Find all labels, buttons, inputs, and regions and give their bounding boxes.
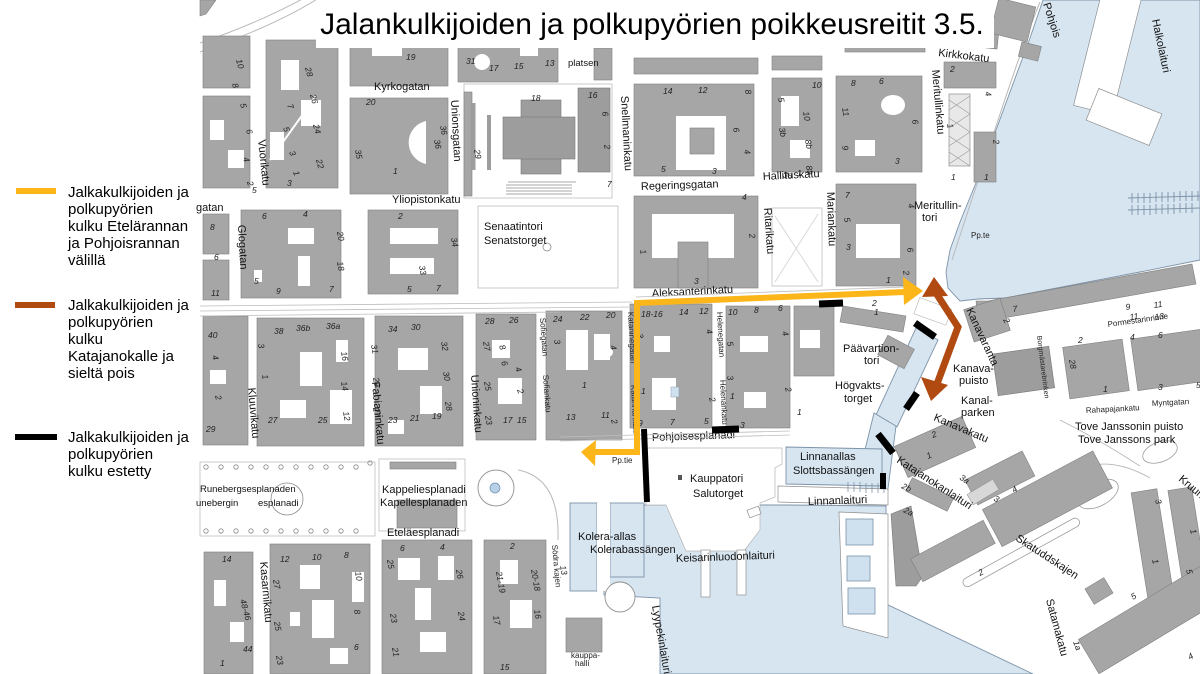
svg-text:9: 9 (276, 286, 281, 296)
svg-text:34: 34 (449, 237, 461, 248)
svg-text:20: 20 (605, 310, 616, 320)
svg-text:10: 10 (353, 571, 365, 582)
svg-text:23: 23 (388, 612, 400, 624)
svg-text:16: 16 (532, 609, 544, 620)
svg-text:38: 38 (274, 326, 284, 336)
svg-text:16: 16 (588, 90, 598, 100)
svg-text:1: 1 (874, 307, 879, 317)
svg-text:26: 26 (454, 568, 466, 580)
svg-text:1: 1 (220, 658, 225, 668)
svg-text:19: 19 (406, 52, 416, 62)
svg-text:3: 3 (895, 156, 900, 166)
svg-text:12: 12 (280, 554, 290, 564)
svg-text:Pp.te: Pp.te (971, 231, 990, 240)
svg-text:19: 19 (432, 411, 442, 421)
svg-text:3a: 3a (783, 170, 793, 180)
svg-text:6: 6 (262, 211, 267, 221)
svg-text:29: 29 (472, 148, 484, 160)
svg-text:23: 23 (483, 414, 495, 426)
svg-text:25: 25 (272, 620, 284, 632)
svg-text:Kauppatori: Kauppatori (690, 473, 743, 485)
svg-text:26: 26 (508, 315, 519, 325)
svg-text:Högvakts-: Högvakts- (835, 380, 885, 392)
svg-text:2: 2 (397, 211, 403, 221)
svg-text:Jalankulkijoiden ja polkupyöri: Jalankulkijoiden ja polkupyörien poikkeu… (320, 8, 984, 41)
svg-text:10: 10 (812, 80, 822, 90)
svg-text:17: 17 (491, 615, 503, 626)
svg-text:17: 17 (489, 63, 499, 73)
svg-text:16: 16 (339, 351, 351, 362)
svg-text:20: 20 (335, 230, 347, 242)
svg-text:32: 32 (439, 341, 451, 352)
svg-text:Tove Janssonin puisto: Tove Janssonin puisto (1075, 421, 1183, 433)
svg-text:4: 4 (1130, 332, 1135, 342)
svg-text:Yliopistonkatu: Yliopistonkatu (392, 194, 461, 206)
svg-text:30: 30 (411, 322, 421, 332)
svg-text:1: 1 (951, 172, 956, 182)
svg-text:7: 7 (436, 283, 441, 293)
svg-text:3: 3 (740, 420, 745, 430)
svg-text:3: 3 (846, 242, 851, 252)
svg-text:Mariankatu: Mariankatu (824, 192, 838, 247)
svg-text:3: 3 (694, 276, 699, 286)
svg-text:Eteläesplanadi: Eteläesplanadi (387, 527, 459, 539)
svg-text:40: 40 (208, 330, 218, 340)
svg-text:7: 7 (670, 417, 675, 427)
svg-text:2: 2 (949, 64, 955, 74)
svg-text:10: 10 (801, 111, 813, 122)
svg-text:Kappeliesplanadi: Kappeliesplanadi (382, 484, 466, 496)
svg-text:Pp.tie: Pp.tie (612, 456, 633, 465)
svg-text:44: 44 (243, 644, 253, 654)
svg-text:7: 7 (329, 284, 334, 294)
svg-text:Tove Janssons park: Tove Janssons park (1078, 434, 1176, 446)
svg-text:1: 1 (886, 275, 891, 285)
svg-text:13: 13 (1154, 311, 1165, 322)
svg-text:1: 1 (797, 407, 802, 417)
svg-text:23: 23 (274, 654, 286, 666)
svg-text:Meritullin-: Meritullin- (914, 200, 962, 212)
svg-text:4: 4 (742, 192, 747, 202)
svg-text:18-16: 18-16 (641, 309, 663, 319)
svg-text:5: 5 (661, 164, 666, 174)
svg-text:8: 8 (754, 305, 759, 315)
svg-text:Kanal-: Kanal- (961, 395, 993, 407)
svg-text:Kanava-: Kanava- (953, 363, 994, 375)
svg-text:12: 12 (698, 85, 708, 95)
svg-text:30: 30 (441, 371, 453, 382)
svg-text:2: 2 (871, 298, 877, 308)
svg-text:Linnanallas: Linnanallas (800, 451, 856, 463)
svg-text:21: 21 (409, 413, 420, 423)
svg-text:Päävartion-: Päävartion- (843, 343, 900, 355)
svg-text:20: 20 (365, 97, 376, 107)
svg-text:12: 12 (341, 411, 353, 422)
svg-text:14: 14 (222, 554, 232, 564)
svg-text:17: 17 (503, 415, 513, 425)
svg-text:13: 13 (558, 565, 570, 576)
svg-text:1: 1 (393, 166, 398, 176)
svg-text:Kyrkogatan: Kyrkogatan (374, 81, 430, 93)
svg-text:27: 27 (271, 578, 283, 590)
svg-text:Glogatan: Glogatan (235, 225, 249, 270)
svg-text:7: 7 (845, 190, 850, 200)
svg-text:esplanadi: esplanadi (258, 498, 299, 509)
svg-text:24: 24 (456, 610, 468, 622)
svg-text:halli: halli (575, 659, 589, 668)
svg-text:6: 6 (879, 76, 884, 86)
svg-text:6: 6 (214, 252, 219, 262)
svg-text:18: 18 (531, 93, 541, 103)
svg-text:27: 27 (267, 415, 278, 425)
svg-text:23: 23 (387, 415, 398, 425)
svg-text:36a: 36a (326, 321, 340, 331)
svg-text:28: 28 (1067, 358, 1079, 370)
svg-text:tori: tori (864, 355, 879, 367)
svg-text:tori: tori (922, 212, 937, 224)
svg-text:8: 8 (210, 222, 215, 232)
svg-text:22: 22 (579, 312, 590, 322)
svg-text:29: 29 (371, 376, 383, 388)
svg-text:4: 4 (303, 209, 308, 219)
svg-text:11: 11 (1129, 311, 1139, 322)
svg-text:Senaatintori: Senaatintori (484, 221, 543, 233)
svg-text:27: 27 (371, 406, 383, 418)
svg-text:7: 7 (607, 179, 612, 189)
svg-text:Slottsbassängen: Slottsbassängen (793, 465, 874, 477)
svg-text:torget: torget (844, 393, 872, 405)
svg-text:35: 35 (353, 149, 365, 160)
svg-text:5: 5 (704, 416, 709, 426)
svg-text:parken: parken (961, 407, 995, 419)
svg-text:33: 33 (417, 265, 429, 276)
svg-text:25: 25 (385, 558, 397, 570)
svg-text:Salutorget: Salutorget (693, 488, 743, 500)
svg-text:36: 36 (438, 125, 450, 136)
svg-text:12: 12 (699, 306, 709, 316)
svg-text:13: 13 (545, 58, 555, 68)
svg-text:36: 36 (432, 139, 444, 150)
svg-text:18: 18 (335, 261, 347, 272)
svg-text:36b: 36b (296, 323, 310, 333)
svg-text:14: 14 (339, 381, 351, 392)
svg-text:1: 1 (1103, 384, 1108, 394)
svg-text:Senatstorget: Senatstorget (484, 235, 546, 247)
svg-text:28: 28 (443, 400, 455, 412)
svg-text:11: 11 (211, 288, 220, 298)
svg-text:Kolera-allas: Kolera-allas (578, 531, 637, 543)
svg-text:14: 14 (663, 86, 673, 96)
svg-text:14: 14 (679, 307, 689, 317)
svg-text:29: 29 (205, 424, 216, 434)
svg-text:5: 5 (252, 185, 257, 195)
svg-text:gatan: gatan (196, 202, 224, 214)
svg-text:8a: 8a (804, 165, 816, 176)
svg-text:3b: 3b (777, 127, 789, 138)
svg-text:8b: 8b (803, 139, 815, 150)
svg-text:1: 1 (641, 386, 646, 396)
svg-text:3: 3 (287, 178, 292, 188)
svg-text:10: 10 (728, 307, 738, 317)
svg-text:11: 11 (1153, 299, 1163, 310)
svg-text:5: 5 (407, 284, 412, 294)
svg-text:25: 25 (482, 380, 494, 392)
svg-text:3: 3 (712, 166, 717, 176)
svg-text:6: 6 (1158, 330, 1163, 340)
svg-text:4: 4 (440, 542, 445, 552)
svg-text:24: 24 (552, 314, 563, 324)
svg-text:Kapellesplanaden: Kapellesplanaden (380, 497, 467, 509)
svg-text:6: 6 (354, 642, 359, 652)
svg-text:25: 25 (317, 415, 328, 425)
svg-text:13: 13 (566, 412, 576, 422)
svg-text:27: 27 (481, 340, 493, 352)
svg-text:unebergin: unebergin (196, 498, 238, 509)
svg-text:Kolerabassängen: Kolerabassängen (590, 544, 676, 556)
svg-text:21: 21 (390, 646, 402, 658)
svg-text:5: 5 (1196, 380, 1200, 390)
svg-text:1: 1 (797, 168, 802, 178)
svg-text:31: 31 (466, 56, 476, 66)
svg-text:Runebergsesplanaden: Runebergsesplanaden (200, 484, 296, 495)
svg-text:platsen: platsen (568, 58, 599, 69)
svg-text:2: 2 (509, 541, 515, 551)
svg-text:15: 15 (514, 61, 524, 71)
svg-text:15: 15 (517, 415, 527, 425)
svg-text:8: 8 (851, 78, 856, 88)
svg-text:1: 1 (730, 391, 735, 401)
svg-text:1: 1 (582, 380, 587, 390)
svg-text:15: 15 (500, 662, 510, 672)
svg-text:34: 34 (388, 324, 398, 334)
svg-text:1: 1 (984, 172, 989, 182)
svg-text:3: 3 (1158, 382, 1163, 392)
svg-text:28: 28 (484, 316, 495, 326)
svg-text:6: 6 (400, 543, 405, 553)
svg-text:5: 5 (254, 276, 259, 286)
svg-text:puisto: puisto (959, 375, 988, 387)
svg-text:31: 31 (369, 344, 381, 355)
svg-text:6: 6 (778, 303, 783, 313)
svg-text:Linnanlaituri: Linnanlaituri (808, 494, 868, 508)
svg-text:10: 10 (312, 552, 322, 562)
svg-text:11: 11 (601, 410, 610, 420)
svg-text:8: 8 (344, 550, 349, 560)
svg-text:2: 2 (1077, 335, 1083, 345)
